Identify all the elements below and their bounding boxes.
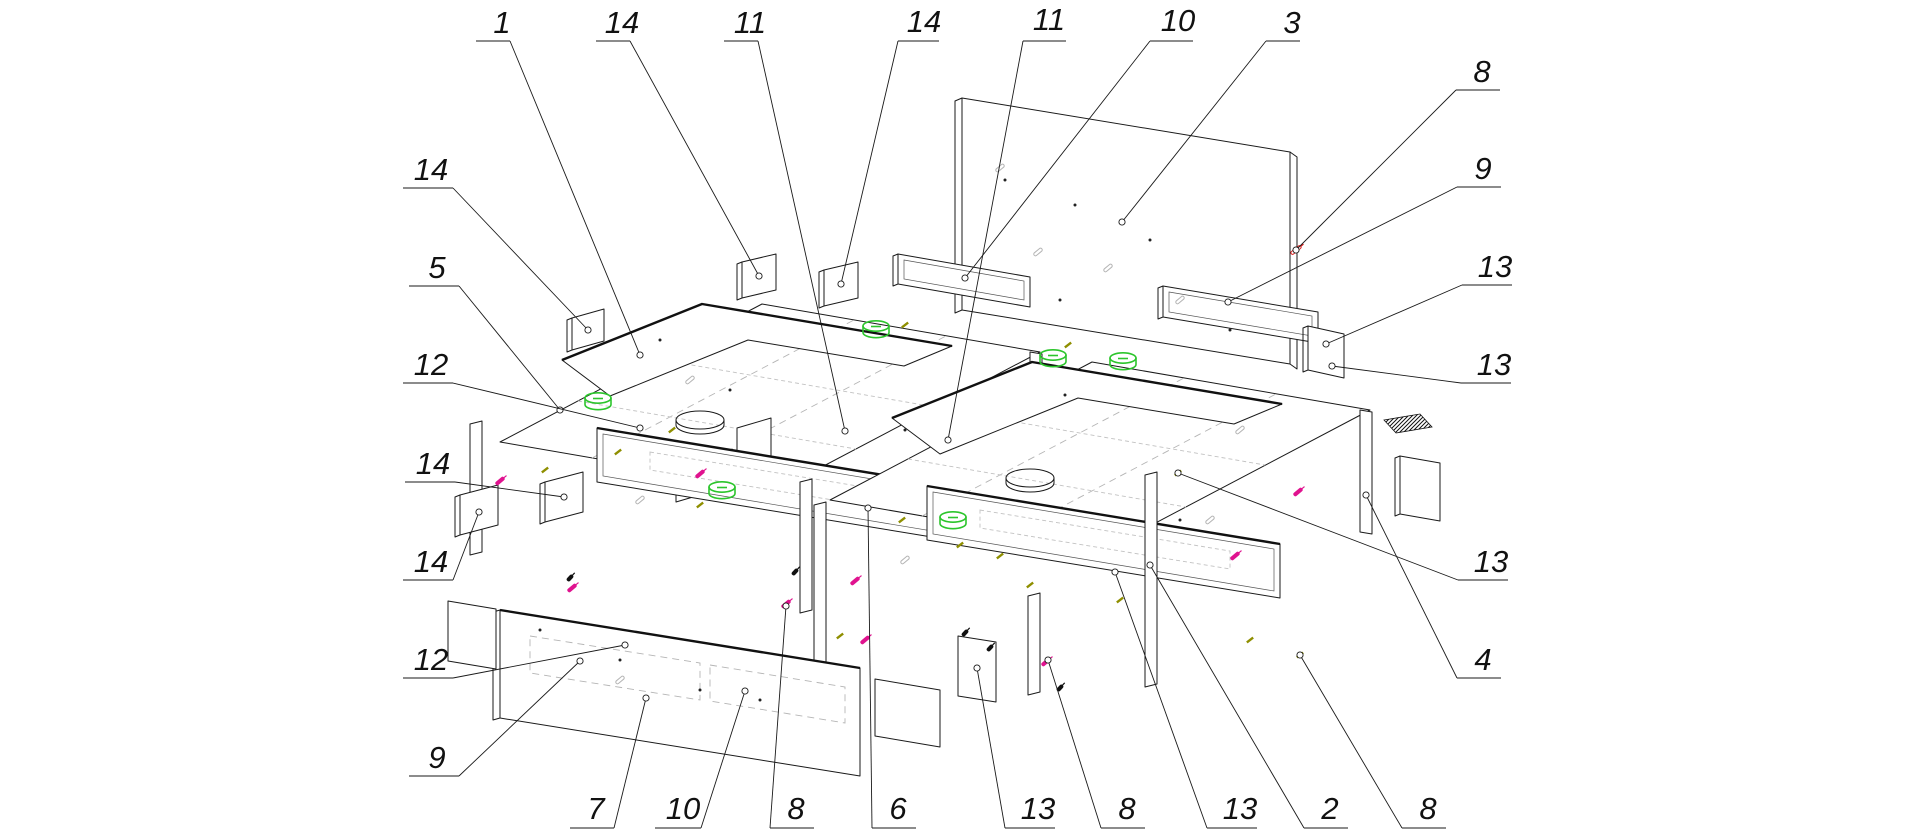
furniture-parts-layer (448, 98, 1440, 776)
callout-leader-line (510, 41, 640, 355)
callout-8-28: 8 (1297, 652, 1446, 828)
fastener-hole-dot (539, 629, 542, 632)
callout-target-circle (585, 327, 591, 333)
fastener-hole-dot (729, 389, 732, 392)
callout-1-0: 1 (476, 5, 643, 358)
screw-black-icon (566, 572, 575, 582)
screw-black-icon (791, 566, 800, 576)
callout-number: 8 (1118, 791, 1136, 826)
callout-target-circle (637, 425, 643, 431)
callout-target-circle (842, 428, 848, 434)
partition-wall-b (1028, 593, 1040, 695)
callout-number: 14 (416, 446, 450, 481)
callout-number: 7 (587, 791, 606, 826)
assembly-drawing-page: 1141114111031451214141298913131347108613… (0, 0, 1920, 835)
callout-target-circle (1119, 219, 1125, 225)
fastener-hole-dot (904, 429, 907, 432)
ghost-screw-icon (635, 495, 645, 504)
screw-magenta-icon (850, 574, 862, 585)
callout-13-17: 13 (1329, 347, 1511, 383)
callout-leader-line (841, 41, 898, 284)
callout-leader-line (1326, 285, 1462, 344)
callout-leader-line (1150, 565, 1304, 828)
callout-target-circle (1045, 657, 1051, 663)
callout-13-16: 13 (1323, 249, 1512, 347)
callout-number: 3 (1283, 5, 1300, 40)
callout-13-26: 13 (1112, 569, 1257, 828)
left-box-left-wall (470, 421, 482, 555)
callout-number: 13 (1223, 791, 1257, 826)
dowel-olive-icon (541, 467, 549, 474)
callout-number: 14 (414, 544, 448, 579)
callout-target-circle (974, 665, 980, 671)
callout-number: 9 (1474, 151, 1491, 186)
callout-number: 13 (1021, 791, 1055, 826)
footboard-panel (500, 610, 860, 776)
callout-target-circle (865, 505, 871, 511)
fastener-hole-dot (1004, 179, 1007, 182)
callout-number: 11 (1033, 2, 1065, 37)
callout-target-circle (1297, 652, 1303, 658)
callout-target-circle (637, 352, 643, 358)
callout-target-circle (476, 509, 482, 515)
callout-number: 14 (414, 152, 448, 187)
callout-number: 10 (1161, 3, 1195, 38)
screw-magenta-icon (860, 633, 872, 644)
callout-target-circle (945, 437, 951, 443)
callout-number: 9 (428, 740, 445, 775)
callout-target-circle (962, 275, 968, 281)
fastener-hole-dot (659, 339, 662, 342)
callout-8-25: 8 (1045, 657, 1145, 828)
callout-number: 13 (1477, 347, 1511, 382)
callout-target-circle (561, 494, 567, 500)
callout-target-circle (742, 688, 748, 694)
dowel-olive-icon (836, 633, 844, 640)
callout-number: 12 (414, 642, 448, 677)
callout-leader-line (453, 188, 588, 330)
dowel-olive-icon (1026, 582, 1034, 589)
fastener-hole-dot (619, 659, 622, 662)
callout-leader-line (1300, 655, 1402, 828)
callout-14-7: 14 (403, 152, 591, 333)
callout-number: 10 (666, 791, 700, 826)
dowel-olive-icon (1116, 597, 1124, 604)
callout-14-1: 14 (596, 5, 762, 279)
fastener-hole-dot (1059, 299, 1062, 302)
fastener-hole-dot (1064, 394, 1067, 397)
exploded-assembly-svg: 1141114111031451214141298913131347108613… (0, 0, 1920, 835)
callout-target-circle (1323, 341, 1329, 347)
fastener-hole-dot (1229, 329, 1232, 332)
callout-14-3: 14 (838, 4, 941, 287)
callout-target-circle (1293, 247, 1299, 253)
right-box-right-wall (1360, 410, 1372, 534)
right-box-left-wall (800, 479, 812, 613)
callout-leader-line (1115, 572, 1207, 828)
footboard-right-wing (875, 679, 940, 747)
fastener-hole-dot (1074, 204, 1077, 207)
fastener-hole-dot (759, 699, 762, 702)
callout-target-circle (1225, 299, 1231, 305)
callout-number: 13 (1474, 544, 1508, 579)
callout-target-circle (756, 273, 762, 279)
callout-number: 11 (734, 5, 766, 40)
screw-magenta-icon (567, 581, 579, 592)
callout-target-circle (838, 281, 844, 287)
callout-8-14: 8 (1293, 54, 1500, 253)
ghost-screw-icon (900, 555, 910, 564)
callout-2-27: 2 (1147, 562, 1348, 828)
callout-number: 4 (1474, 642, 1491, 677)
dowel-olive-icon (901, 322, 909, 329)
callout-number: 12 (414, 347, 448, 382)
footboard (448, 601, 940, 776)
callout-5-8: 5 (409, 250, 563, 413)
callout-leader-line (1332, 366, 1461, 383)
callout-number: 14 (907, 4, 941, 39)
dowel-olive-icon (696, 502, 704, 509)
callout-target-circle (643, 695, 649, 701)
callout-leader-line (1048, 660, 1101, 828)
callout-number: 8 (1473, 54, 1491, 89)
partition-wall-c (1145, 472, 1157, 687)
callout-number: 8 (1419, 791, 1437, 826)
callout-number: 2 (1320, 791, 1338, 826)
ghost-screw-icon (1205, 515, 1215, 524)
callout-target-circle (1147, 562, 1153, 568)
callout-target-circle (1175, 470, 1181, 476)
fastener-hole-dot (1179, 519, 1182, 522)
screw-magenta-icon (495, 474, 507, 485)
footboard-left-wing (448, 601, 496, 669)
hardware-kit-hatch (1384, 414, 1432, 433)
callout-target-circle (1329, 363, 1335, 369)
callout-target-circle (622, 642, 628, 648)
callout-number: 6 (889, 791, 907, 826)
fastener-hole-dot (1149, 239, 1152, 242)
callout-number: 5 (428, 250, 446, 285)
fastener-hole-dot (699, 689, 702, 692)
callout-number: 8 (787, 791, 805, 826)
callout-leader-line (1366, 495, 1457, 678)
dowel-olive-icon (1246, 637, 1254, 644)
dowel-olive-icon (1064, 342, 1072, 349)
callout-leader-line (868, 508, 872, 828)
callout-leader-line (630, 41, 759, 276)
callout-target-circle (783, 603, 789, 609)
screw-black-icon (961, 627, 970, 637)
callout-number: 13 (1478, 249, 1512, 284)
screw-magenta-icon (1293, 485, 1305, 496)
callout-target-circle (1363, 492, 1369, 498)
callout-leader-line (1296, 90, 1456, 250)
callout-6-23: 6 (865, 505, 916, 828)
callout-target-circle (1112, 569, 1118, 575)
callout-number: 1 (493, 5, 510, 40)
callout-target-circle (577, 658, 583, 664)
callout-number: 14 (605, 5, 639, 40)
dowel-olive-icon (996, 553, 1004, 560)
callout-leader-line (459, 286, 560, 410)
